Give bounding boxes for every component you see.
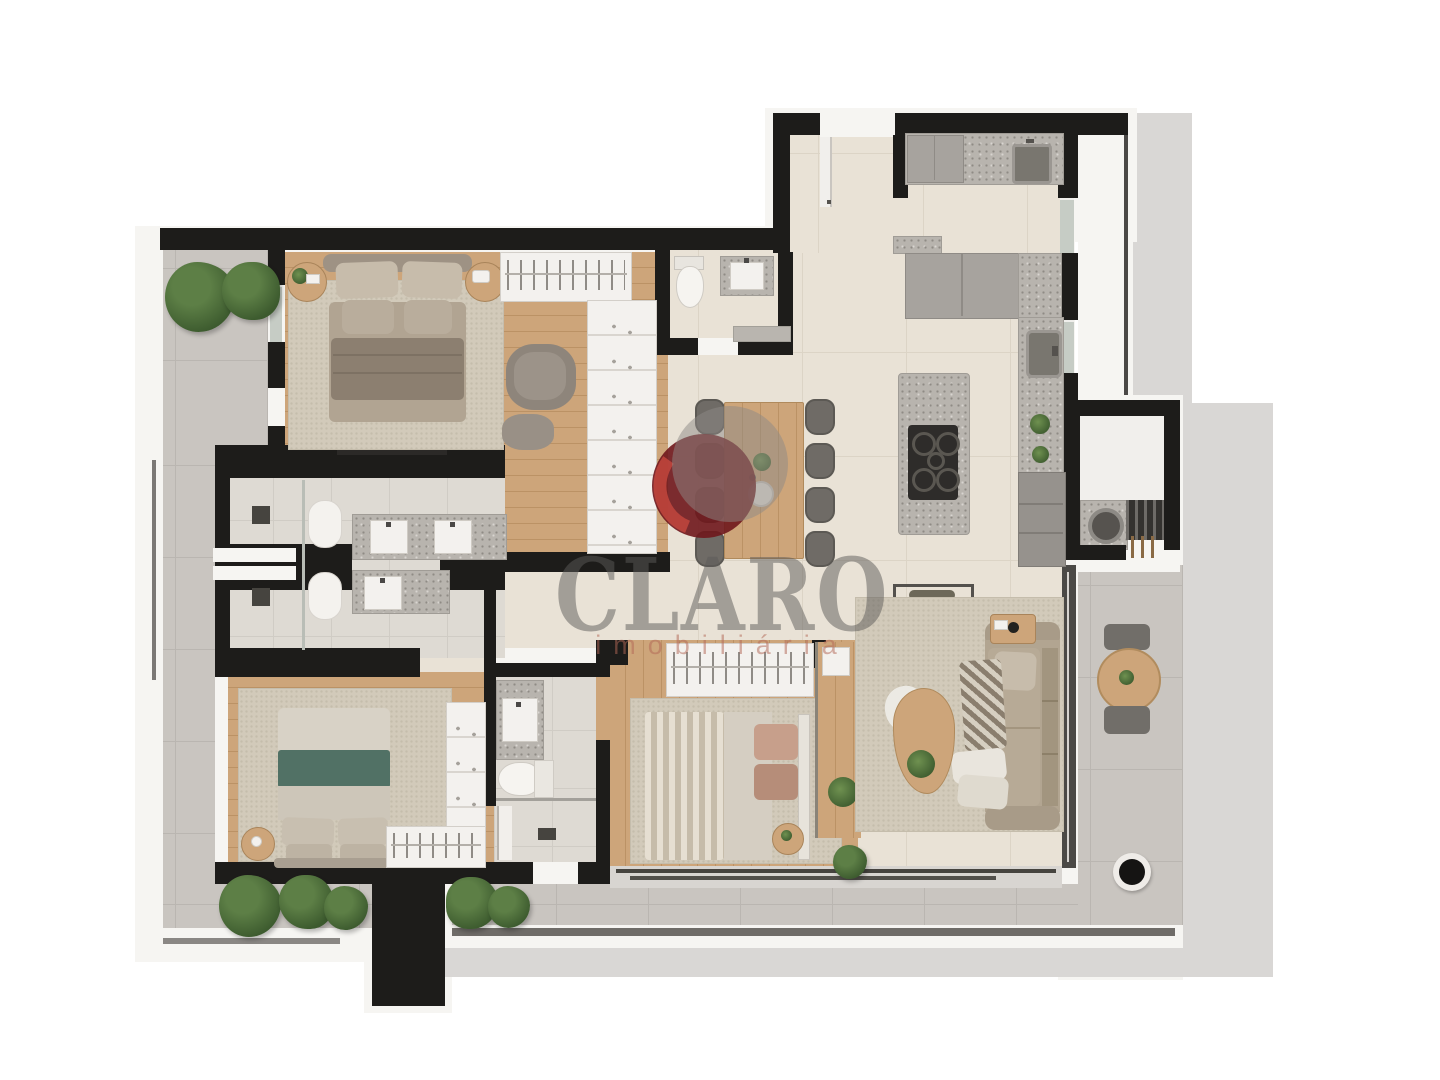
logo-gray-blob <box>672 406 788 522</box>
watermark-subtitle: imobiliária <box>420 630 1024 661</box>
floorplan-render: CLARO imobiliária <box>0 0 1440 1080</box>
